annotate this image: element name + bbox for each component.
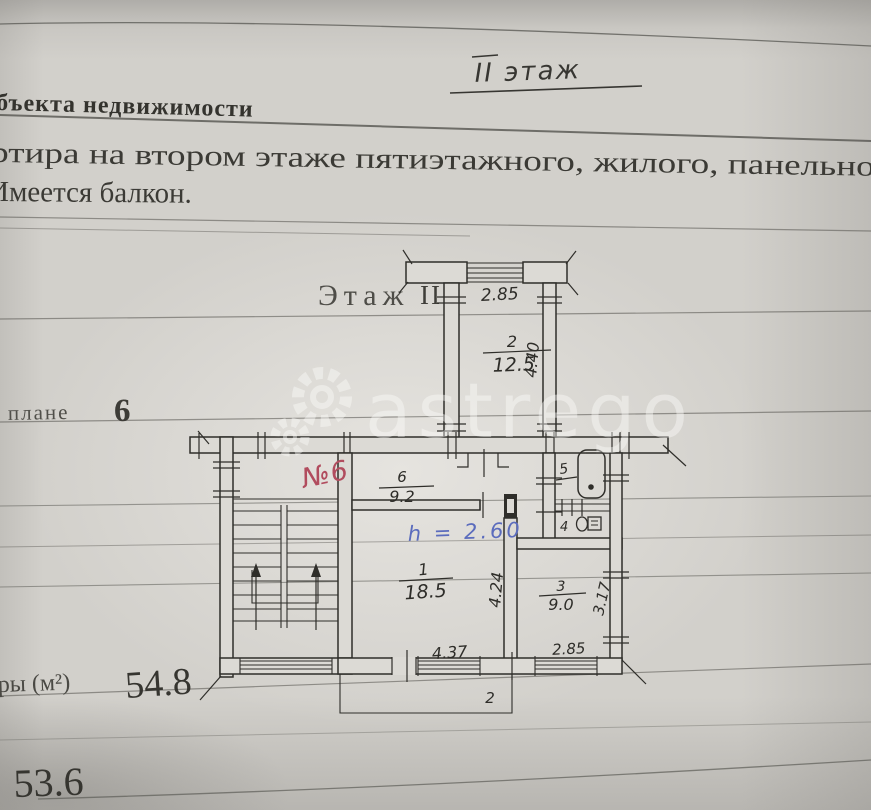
section-heading: бъекта недвижимости bbox=[0, 90, 254, 123]
handwritten-blue-note: h = 2.60 bbox=[407, 518, 523, 546]
hall-bath-wall bbox=[543, 453, 555, 545]
room-small-number: 3 bbox=[557, 579, 566, 595]
plan-note-caption: плане bbox=[8, 400, 70, 425]
room-small-width: 2.85 bbox=[552, 639, 586, 659]
balcony-top-width: 2.85 bbox=[480, 284, 519, 306]
room-main-number: 1 bbox=[417, 560, 429, 580]
bathroom-number: 5 bbox=[558, 461, 569, 478]
area-total: 54.8 bbox=[124, 660, 193, 707]
hall-bottom-wall bbox=[352, 500, 480, 510]
description-line2: Имеется балкон. bbox=[0, 176, 192, 210]
area-secondary: 53.6 bbox=[13, 759, 85, 806]
stairs bbox=[233, 499, 338, 630]
floor-number: II bbox=[420, 280, 442, 310]
floor-caption: Этаж bbox=[318, 279, 409, 312]
room-top-number: 2 bbox=[507, 332, 517, 351]
right-outer-wall bbox=[610, 453, 622, 660]
room-main-depth: 4.24 bbox=[485, 571, 507, 608]
area-row-caption: ры (м²) bbox=[0, 670, 71, 699]
toilet-number: 4 bbox=[560, 520, 568, 535]
watermark-text: astrego bbox=[365, 366, 694, 455]
room-main-area: 18.5 bbox=[404, 580, 448, 605]
block-bottom-wall bbox=[517, 538, 622, 549]
room-main-width: 4.37 bbox=[431, 642, 469, 663]
plan-note-number: 6 bbox=[114, 393, 131, 429]
bottom-wall bbox=[338, 650, 646, 684]
balcony-bottom-number: 2 bbox=[485, 689, 495, 707]
bathtub-icon bbox=[578, 450, 605, 498]
stair-arrow bbox=[311, 563, 321, 577]
room-small-area: 9.0 bbox=[548, 595, 573, 614]
handwritten-floor-note: II этаж bbox=[474, 55, 581, 89]
hall-area: 9.2 bbox=[389, 487, 414, 506]
plan-labels: 2.85 2 12.5 4.40 6 9.2 1 18.5 4.37 4.24 … bbox=[379, 284, 615, 707]
description-line1: ртира на втором этаже пятиэтажного, жило… bbox=[0, 137, 871, 183]
hall-number: 6 bbox=[397, 468, 407, 486]
scanned-document-page: бъекта недвижимости ртира на втором этаж… bbox=[0, 0, 871, 810]
toilet-icon bbox=[577, 517, 602, 531]
document-canvas: бъекта недвижимости ртира на втором этаж… bbox=[0, 0, 871, 810]
floor-plan: 2.85 2 12.5 4.40 6 9.2 1 18.5 4.37 4.24 … bbox=[190, 250, 686, 713]
